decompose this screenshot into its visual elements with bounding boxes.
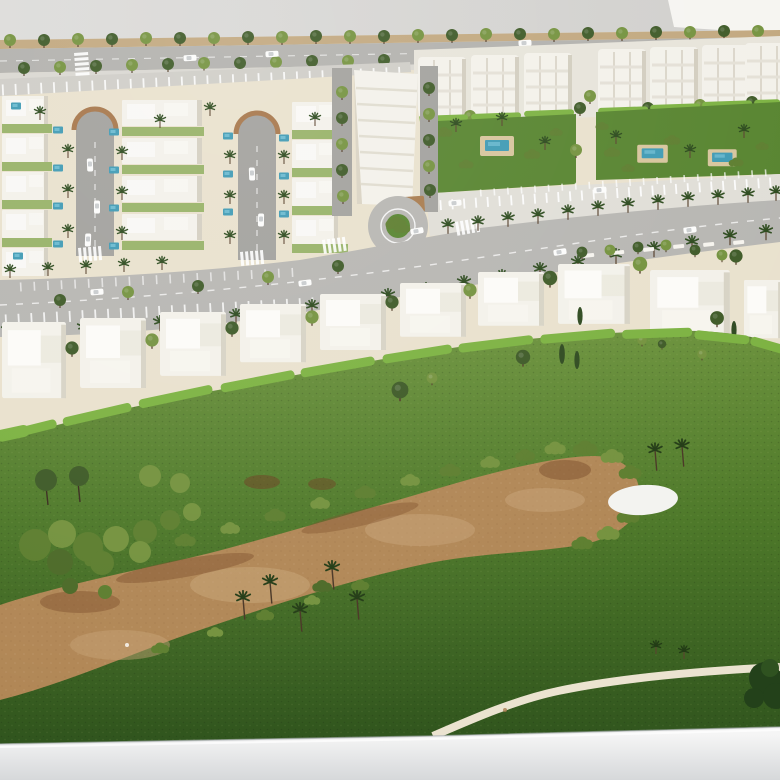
photo-glare — [0, 0, 780, 780]
photo-of-architectural-model — [0, 0, 780, 780]
